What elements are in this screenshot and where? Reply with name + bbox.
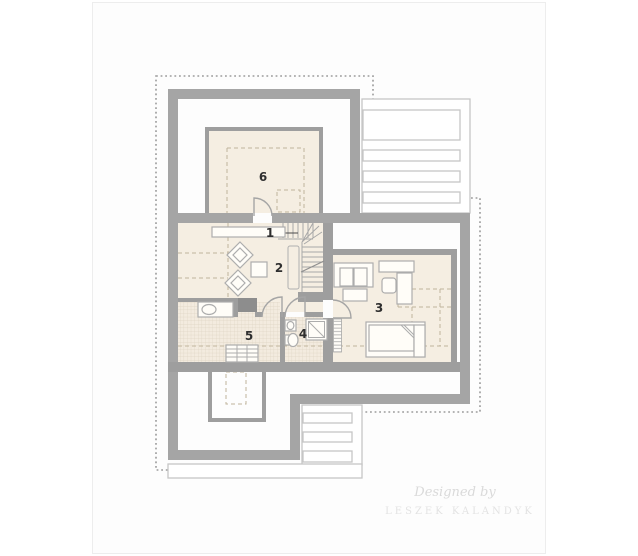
room-4-label: 4 — [299, 327, 307, 341]
radiator — [334, 319, 342, 352]
wall-shelf — [379, 261, 414, 272]
room-2-label: 2 — [275, 261, 283, 275]
sink — [285, 320, 296, 331]
desk-chair — [382, 278, 396, 293]
room-6-label: 6 — [259, 170, 267, 184]
room-3-label: 3 — [375, 301, 383, 315]
washbasin — [198, 302, 233, 317]
toilet — [285, 334, 298, 347]
shower — [306, 319, 327, 340]
chimney-block — [238, 298, 257, 312]
watermark-name: LESZEK KALANDYK — [385, 506, 535, 517]
floor-plan-page: 1 2 3 4 5 6 Designed by LESZEK KALANDYK — [0, 0, 638, 556]
side-table — [251, 262, 267, 277]
bed — [366, 322, 425, 357]
floor-plan-drawing: 1 2 3 4 5 6 Designed by LESZEK KALANDYK — [0, 0, 638, 556]
balcony-top-right — [362, 99, 470, 213]
room-1-label: 1 — [266, 226, 274, 240]
sofa — [334, 263, 373, 287]
bench-drawers — [226, 345, 258, 362]
desk — [397, 273, 412, 304]
stair-railing — [288, 246, 299, 289]
ottoman — [343, 289, 367, 301]
watermark-script: Designed by — [413, 485, 496, 500]
room-5-label: 5 — [245, 329, 253, 343]
